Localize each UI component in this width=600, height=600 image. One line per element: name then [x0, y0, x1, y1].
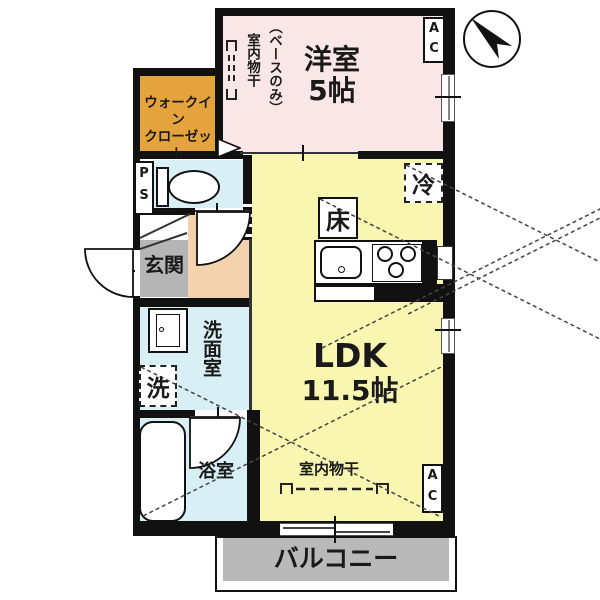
ac-unit-label: AC	[423, 17, 445, 63]
western-room-size: 5帖	[272, 75, 392, 106]
balcony-sliding-window	[280, 523, 393, 536]
door-line	[240, 152, 358, 154]
floor-storage: 床	[318, 197, 358, 239]
x-mark-icon	[141, 367, 441, 517]
window-tick	[435, 96, 461, 98]
wic-label: ウォークイン クローゼット	[138, 95, 218, 163]
window-rail	[336, 531, 390, 533]
wall	[133, 298, 252, 307]
door-tick	[302, 145, 304, 161]
front-door-swing-arc	[84, 248, 134, 298]
wic-label-line2: クローゼット	[138, 129, 218, 163]
balcony-label: バルコニー	[217, 545, 455, 573]
balcony-outline: バルコニー	[215, 536, 457, 592]
wall	[358, 151, 443, 159]
washer-label: 洗	[147, 369, 170, 403]
western-room-label: 洋室 5帖	[272, 44, 392, 107]
toilet-door-swing-arc	[196, 211, 251, 266]
wic-label-line1: ウォークイン	[138, 95, 218, 129]
floor-storage-label: 床	[326, 201, 350, 236]
washbasin-knob	[159, 327, 164, 332]
indoor-drying-label: 室内物干	[242, 33, 262, 103]
floor-plan: バルコニー	[0, 0, 600, 600]
toilet-bowl	[168, 170, 220, 204]
window-rail	[283, 527, 335, 529]
x-mark-icon	[320, 199, 600, 349]
wall	[243, 155, 252, 197]
washbasin-cabinet	[148, 308, 188, 353]
front-door-opening	[133, 250, 140, 296]
drying-rail-icon	[224, 38, 239, 102]
window	[441, 74, 455, 122]
drying-note-label: （ベースのみ）	[264, 20, 284, 132]
wall	[215, 8, 455, 16]
western-room-name: 洋室	[272, 44, 392, 75]
western-room-note: 室内物干 （ベースのみ）	[224, 20, 288, 136]
refrigerator-label: 冷	[412, 166, 435, 200]
wall	[133, 68, 223, 76]
closet-door-marker	[217, 138, 241, 158]
entrance-label: 玄関	[140, 254, 188, 276]
pipe-space-label: PS	[134, 161, 154, 215]
compass	[463, 10, 521, 68]
window-tick	[334, 516, 336, 543]
refrigerator-space: 冷	[404, 163, 443, 203]
washer-space: 洗	[139, 365, 177, 407]
north-arrow-icon	[465, 12, 518, 65]
